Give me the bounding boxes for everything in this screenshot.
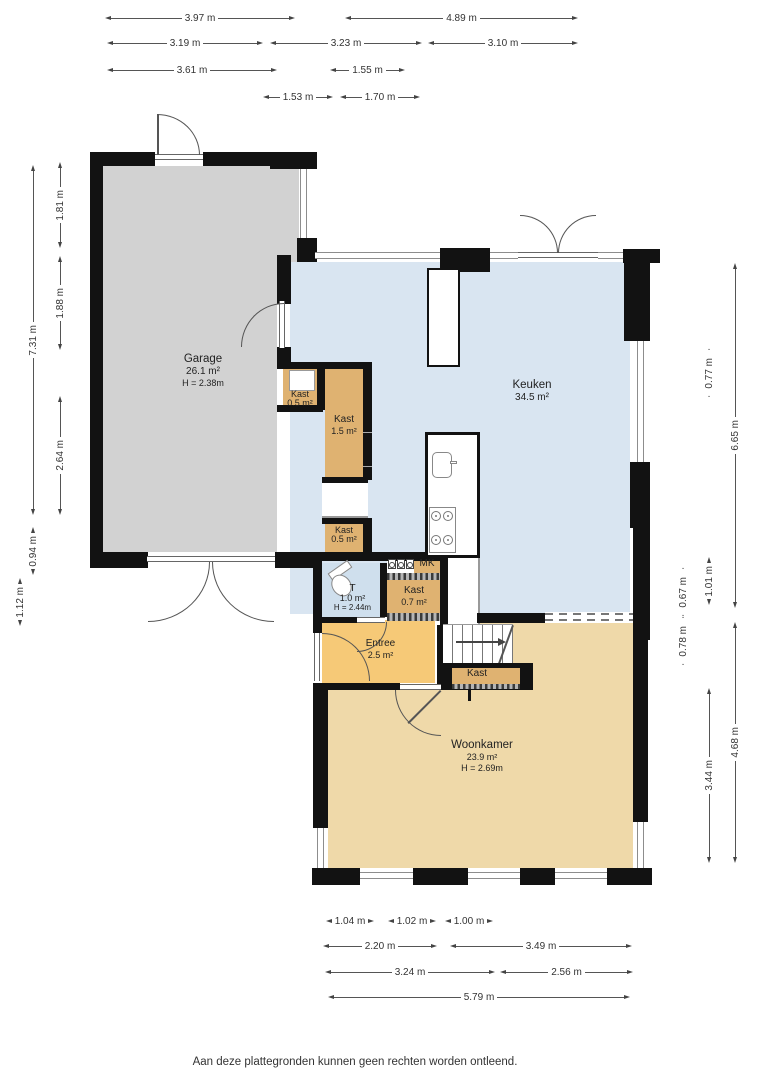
front-door-threshold — [314, 633, 320, 681]
stove-burner — [443, 511, 453, 521]
stairs-top-edge — [443, 624, 513, 625]
room-area: 26.1 m² — [148, 366, 258, 378]
dimension: 1.81 m — [54, 162, 66, 248]
dimension: 1.70 m — [340, 91, 420, 103]
wall-segment — [270, 152, 317, 169]
stove-burner — [431, 535, 441, 545]
window — [555, 872, 607, 879]
wall-segment — [313, 683, 400, 690]
room-area: 0.5 m² — [324, 535, 364, 544]
dimension: 2.64 m — [54, 396, 66, 515]
room-height: H = 2.69m — [427, 763, 537, 774]
room-name: Keuken — [477, 378, 587, 392]
wall-segment — [520, 868, 555, 885]
floor-plan: Garage 26.1 m² H = 2.38m Keuken 34.5 m² … — [0, 0, 768, 1086]
hatch-band — [387, 573, 440, 580]
dimension: 4.89 m — [345, 12, 578, 24]
shelf-tick — [363, 432, 372, 433]
wall-segment — [624, 249, 650, 341]
room-area: 2.5 m² — [343, 650, 418, 661]
wall-segment — [380, 563, 387, 617]
wall-segment — [90, 152, 103, 568]
kast-groot-label: Kast 1.5 m² — [324, 414, 364, 437]
kast-trap-label: Kast — [452, 668, 502, 680]
room-name: MK — [413, 558, 441, 570]
dimension: 1.02 m — [386, 915, 438, 927]
dimension: 1.55 m — [330, 64, 405, 76]
dimension: 2.56 m — [500, 966, 633, 978]
stove-burner — [443, 535, 453, 545]
dimension: 0.78 m — [677, 617, 689, 665]
wall-segment — [413, 868, 468, 885]
window — [315, 252, 440, 259]
island-sink — [432, 452, 452, 478]
entree-label: Entree 2.5 m² — [343, 638, 418, 661]
woonkamer-label: Woonkamer 23.9 m² H = 2.69m — [427, 738, 537, 774]
dimension: 3.24 m — [325, 966, 495, 978]
window — [637, 341, 644, 462]
dimension: 3.97 m — [105, 12, 295, 24]
structural-column — [427, 268, 460, 367]
dimension: 4.68 m — [729, 622, 741, 863]
meter-box — [397, 559, 405, 569]
window — [490, 252, 518, 259]
wall-segment — [440, 552, 448, 625]
dimension: 0.94 m — [27, 532, 39, 570]
dimension: 1.04 m — [323, 915, 377, 927]
dimension: 3.19 m — [107, 37, 263, 49]
window — [468, 872, 520, 879]
door-swing-arc — [520, 215, 558, 253]
garage-floor — [103, 262, 277, 552]
dimension: 0.67 m — [677, 572, 689, 612]
dimension: 1.88 m — [54, 256, 66, 350]
room-name: Kast — [324, 414, 364, 426]
stairs-arrow-shaft — [456, 641, 498, 643]
stairs-upper — [448, 558, 478, 625]
doorway-nook — [322, 483, 368, 517]
wall-segment — [297, 238, 317, 262]
window — [360, 872, 413, 879]
door-swing-arc — [212, 562, 274, 622]
window — [300, 169, 307, 239]
keuken-label: Keuken 34.5 m² — [477, 378, 587, 404]
room-name: Kast — [388, 585, 440, 597]
garage-floor — [103, 166, 299, 262]
dimension: 2.20 m — [323, 940, 437, 952]
room-name: Entree — [343, 638, 418, 650]
wall-segment — [477, 613, 545, 623]
hatch-band — [452, 684, 520, 689]
dimension: 1.53 m — [263, 91, 333, 103]
open-boundary-dash — [545, 619, 633, 621]
door-swing-arc — [157, 114, 200, 155]
kast-klein-label: Kast 0.5 m² — [324, 526, 364, 545]
dimension: 3.49 m — [450, 940, 632, 952]
stairs-arrow-head — [498, 638, 506, 646]
wall-stub — [468, 690, 471, 701]
kast-hal-label: Kast 0.7 m² — [388, 585, 440, 608]
room-name: Garage — [148, 352, 258, 366]
room-name: Kast — [452, 668, 502, 680]
wall-segment — [363, 524, 372, 552]
room-area: 23.9 m² — [427, 752, 537, 763]
wall-segment — [90, 552, 148, 568]
stove-burner — [431, 511, 441, 521]
dimension: 1.01 m — [703, 555, 715, 607]
shelf-tick — [363, 466, 372, 467]
dimension: 3.10 m — [428, 37, 578, 49]
dimension: 6.65 m — [729, 263, 741, 608]
wall-segment — [277, 255, 291, 304]
dimension: 5.79 m — [328, 991, 630, 1003]
window — [317, 828, 324, 868]
dimension: 7.31 m — [27, 165, 39, 515]
room-area: 0.5 m² — [281, 399, 319, 408]
wall-segment — [277, 362, 372, 369]
toilet-label: T 1.0 m² H = 2.44m — [325, 583, 380, 613]
wall-segment — [630, 462, 650, 528]
room-area: 1.5 m² — [324, 426, 364, 437]
meterkast-label: MK — [413, 558, 441, 570]
kast-sink — [289, 370, 315, 391]
wall-segment — [322, 477, 368, 483]
room-area: 34.5 m² — [477, 392, 587, 404]
staircase — [443, 625, 513, 667]
window — [637, 822, 644, 868]
room-name: Woonkamer — [427, 738, 537, 752]
wall-segment — [312, 868, 360, 885]
wall-segment — [313, 683, 328, 828]
dimension: 3.44 m — [703, 688, 715, 863]
garage-label: Garage 26.1 m² H = 2.38m — [148, 352, 258, 389]
wall-segment — [313, 617, 357, 623]
wall-segment — [633, 528, 650, 640]
room-height: H = 2.44m — [325, 604, 380, 613]
dimension: 0.77 m — [703, 342, 715, 404]
wall-segment — [607, 868, 652, 885]
wall-segment — [363, 369, 372, 480]
dimension: 3.23 m — [270, 37, 422, 49]
disclaimer-text: Aan deze plattegronden kunnen geen recht… — [140, 1056, 570, 1068]
dimension: 1.00 m — [443, 915, 495, 927]
room-area: 0.7 m² — [388, 597, 440, 608]
dimension: 1.12 m — [14, 580, 26, 624]
open-boundary-dash — [545, 613, 633, 615]
meter-box — [388, 559, 396, 569]
hatch-band — [387, 613, 440, 621]
kast-boven-label: Kast 0.5 m² — [281, 390, 319, 409]
window — [598, 252, 623, 259]
sink-tap — [450, 461, 457, 464]
dimension: 3.61 m — [107, 64, 277, 76]
wall-segment — [633, 640, 648, 822]
room-height: H = 2.38m — [148, 378, 258, 389]
door-swing-arc — [558, 215, 596, 253]
door-swing-arc — [148, 562, 210, 622]
